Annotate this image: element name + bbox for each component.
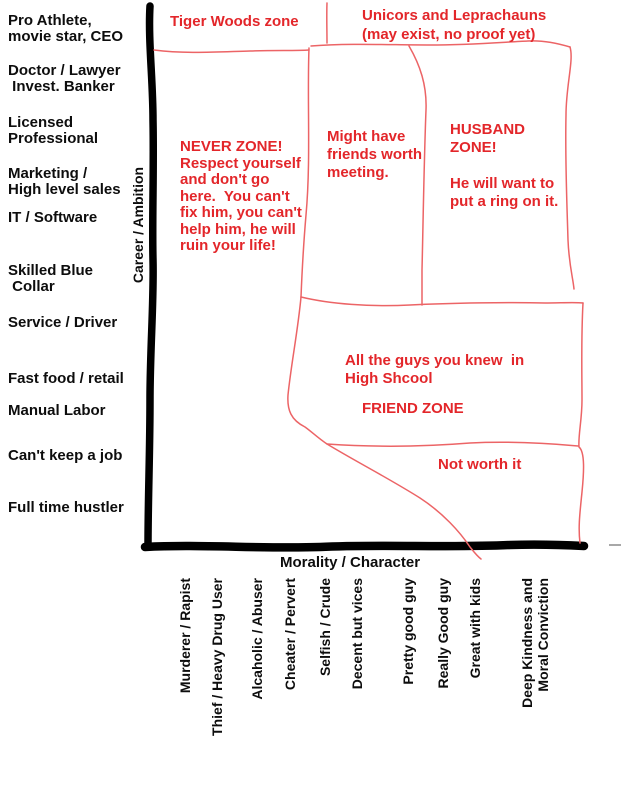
x-label-great-with-kids: Great with kids: [467, 578, 483, 791]
friend-zone-bottom-boundary: [327, 442, 578, 446]
y-axis-line: [148, 6, 153, 546]
y-axis-title: Career / Ambition: [130, 75, 147, 375]
x-label-murderer-rapist: Murderer / Rapist: [177, 578, 193, 791]
x-axis-title: Morality / Character: [280, 554, 420, 571]
unicorns-leprachauns-zone-label: Unicors and Leprachauns (may exist, no p…: [362, 6, 546, 44]
tiger-woods-zone-label: Tiger Woods zone: [170, 13, 299, 31]
y-label-fast-food-retail: Fast food / retail: [8, 371, 124, 387]
y-label-licensed-professional: Licensed Professional: [8, 115, 98, 147]
might-have-friends-zone-label: Might have friends worth meeting.: [327, 128, 422, 182]
friend-zone-title: FRIEND ZONE: [362, 400, 464, 418]
x-label-really-good-guy: Really Good guy: [435, 578, 451, 791]
x-label-alcaholic-abuser: Alcaholic / Abuser: [249, 578, 265, 791]
y-label-pro-athlete: Pro Athlete, movie star, CEO: [8, 13, 123, 45]
friend-zone-top-boundary: [301, 297, 583, 306]
husband-zone-label: HUSBAND ZONE! He will want to put a ring…: [450, 121, 558, 211]
x-label-pretty-good-guy: Pretty good guy: [400, 578, 416, 791]
dating-zones-chart: Pro Athlete, movie star, CEO Doctor / La…: [0, 0, 640, 791]
y-label-skilled-blue-collar: Skilled Blue Collar: [8, 263, 93, 295]
not-worth-it-zone-label: Not worth it: [438, 456, 521, 474]
x-axis-line: [145, 545, 584, 548]
y-label-cant-keep-a-job: Can't keep a job: [8, 448, 122, 464]
x-label-thief-drug-user: Thief / Heavy Drug User: [209, 578, 225, 791]
friend-zone-right-and-not-worth-it-right-boundary: [579, 303, 584, 543]
y-label-it-software: IT / Software: [8, 210, 97, 226]
x-label-selfish-crude: Selfish / Crude: [317, 578, 333, 791]
x-label-deep-kindness: Deep Kindness and Moral Conviction: [519, 578, 551, 791]
y-label-marketing-sales: Marketing / High level sales: [8, 166, 121, 198]
x-label-decent-but-vices: Decent but vices: [349, 578, 365, 791]
never-zone-label: NEVER ZONE! Respect yourself and don't g…: [180, 139, 302, 255]
x-label-cheater-pervert: Cheater / Pervert: [282, 578, 298, 791]
y-label-full-time-hustler: Full time hustler: [8, 500, 124, 516]
friend-zone-left-and-not-worth-it-diagonal: [288, 297, 481, 559]
y-label-manual-labor: Manual Labor: [8, 403, 106, 419]
y-label-doctor-lawyer: Doctor / Lawyer Invest. Banker: [8, 63, 121, 95]
friend-zone-description: All the guys you knew in High Shcool: [345, 352, 524, 388]
y-label-service-driver: Service / Driver: [8, 315, 117, 331]
husband-zone-right-boundary: [566, 47, 574, 289]
top-boundary-left-segment: [154, 50, 309, 52]
never-zone-right-boundary: [301, 48, 309, 297]
